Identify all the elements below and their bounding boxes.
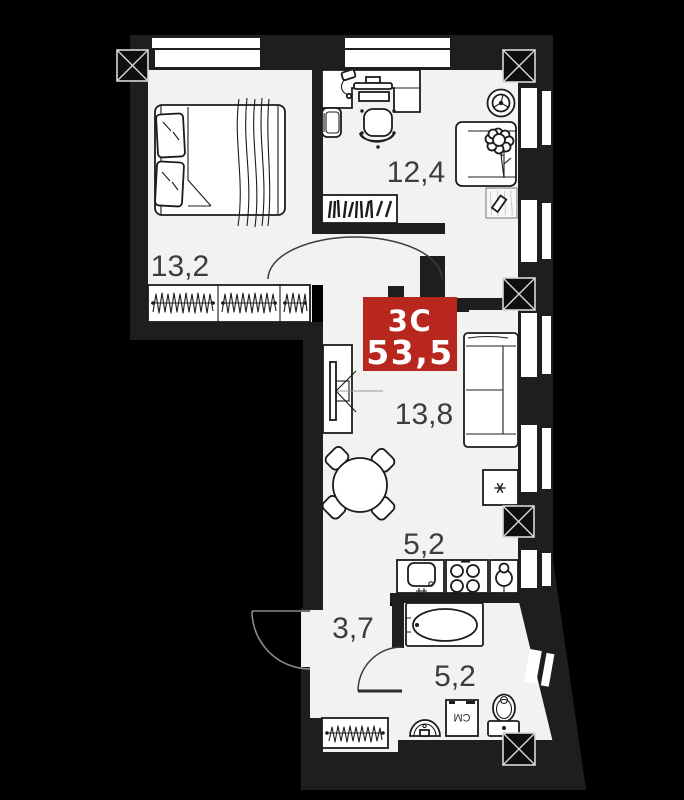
entrance-opening (301, 612, 310, 667)
column-icon (503, 278, 535, 310)
washing-machine-icon: СМ (446, 700, 478, 736)
pillow-icon (156, 113, 185, 157)
column-icon (503, 733, 535, 765)
bathtub-icon (406, 603, 483, 646)
window (521, 550, 551, 588)
bed-icon (155, 98, 285, 227)
floor-plan-canvas: 13,2 (0, 0, 684, 800)
sofa-icon (464, 333, 518, 447)
window (152, 38, 260, 67)
wall-clock-icon (488, 90, 515, 117)
bathroom-area-label: 5,2 (434, 660, 476, 693)
window (345, 38, 450, 67)
corridor-floor (323, 560, 390, 608)
washing-machine-label: СМ (454, 711, 471, 723)
monitor-icon (354, 83, 392, 89)
bookshelf-icon (322, 195, 397, 223)
rug-icon (486, 188, 517, 218)
column-icon (503, 50, 535, 82)
kitchen-sink-icon (397, 560, 444, 594)
window (521, 88, 551, 148)
window (521, 313, 551, 377)
area-badge[interactable]: 3С 53,5 (363, 286, 469, 372)
column-icon (117, 50, 148, 81)
floor-plan: 13,2 (0, 0, 684, 800)
kitchen-appliance-icon (490, 560, 518, 593)
hall-area-label: 3,7 (332, 612, 374, 645)
study-area-label: 12,4 (387, 156, 445, 189)
coat-rack-icon (322, 718, 388, 748)
pillow-icon (155, 161, 184, 206)
keyboard-icon (359, 92, 389, 101)
living-area-label: 13,8 (395, 398, 453, 431)
side-chair-icon (322, 108, 341, 137)
column-icon (503, 506, 534, 537)
wardrobe-icon (148, 285, 310, 322)
bedroom-area-label: 13,2 (151, 250, 209, 283)
fridge-icon (483, 470, 518, 505)
badge-area-label: 53,5 (366, 333, 453, 372)
window (521, 425, 551, 492)
kitchen-area-label: 5,2 (403, 528, 445, 561)
stove-icon (446, 560, 488, 593)
window (521, 200, 551, 262)
